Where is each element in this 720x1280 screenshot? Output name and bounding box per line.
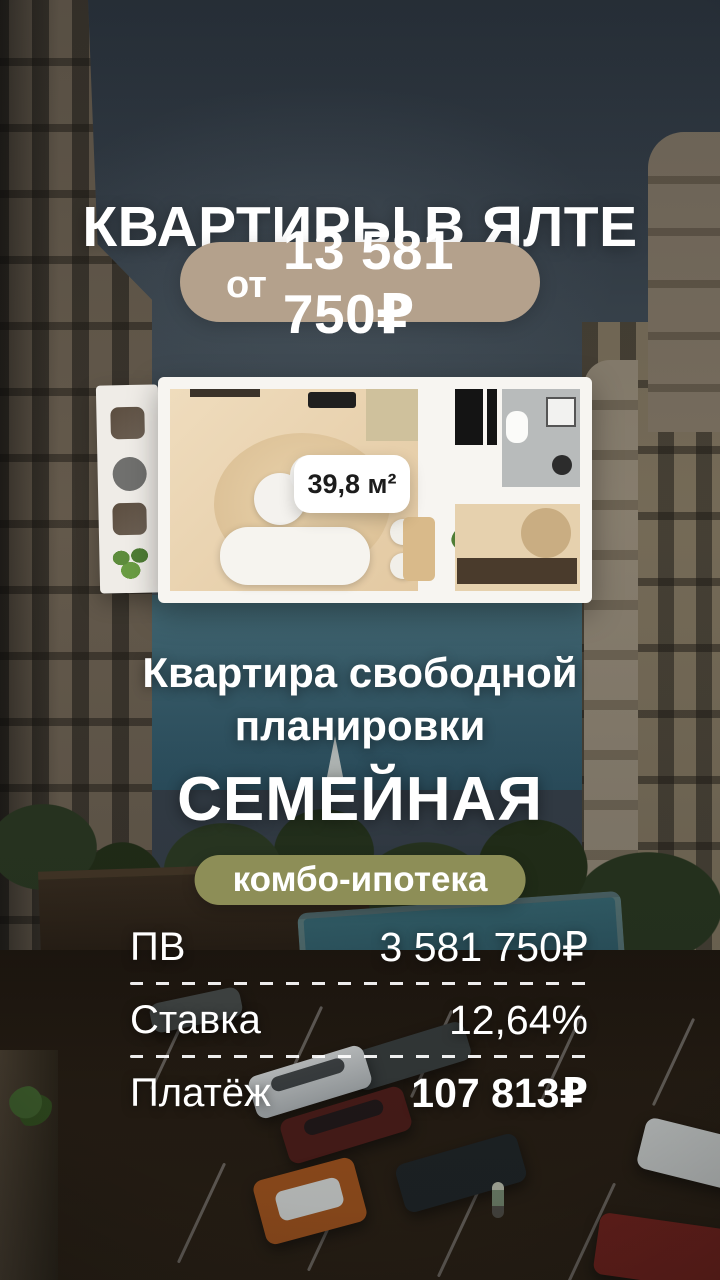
balcony-chair — [112, 503, 147, 536]
row-value: 107 813₽ — [411, 1069, 588, 1117]
balcony-plant — [107, 541, 154, 584]
building-left-base — [0, 1050, 58, 1280]
row-value: 3 581 750₽ — [380, 923, 588, 971]
dining-table — [403, 517, 435, 581]
toilet — [506, 411, 528, 443]
kitchen-cabinet — [366, 389, 418, 441]
shower-chair — [552, 455, 572, 475]
row-label: Ставка — [130, 998, 261, 1043]
row-divider — [130, 982, 588, 985]
apartment-subtitle: Квартира свободной планировки — [0, 646, 720, 753]
row-value: 12,64% — [449, 997, 588, 1044]
table-row: Ставка 12,64% — [130, 985, 588, 1055]
bedroom-chair — [521, 508, 571, 558]
row-divider — [130, 1055, 588, 1058]
mortgage-table: ПВ 3 581 750₽ Ставка 12,64% Платёж 107 8… — [130, 912, 588, 1128]
program-badge-label: комбо-ипотека — [233, 860, 488, 900]
floor-plan: 39,8 м² — [98, 377, 592, 605]
wardrobe — [455, 389, 483, 445]
sofa — [220, 527, 370, 585]
price-badge: от 13 581 750₽ — [180, 242, 540, 322]
table-row: Платёж 107 813₽ — [130, 1058, 588, 1128]
building-right-tower — [648, 132, 720, 432]
kitchen-stove — [308, 392, 356, 408]
balcony-plants — [8, 1086, 52, 1126]
table-row: ПВ 3 581 750₽ — [130, 912, 588, 982]
pedestrian — [492, 1182, 504, 1218]
program-name: СЕМЕЙНАЯ — [0, 764, 720, 835]
wardrobe — [487, 389, 497, 445]
ad-creative: КВАРТИРЫ В ЯЛТЕ от 13 581 750₽ — [0, 0, 720, 1280]
program-badge: комбо-ипотека — [195, 855, 526, 905]
row-label: ПВ — [130, 925, 185, 970]
bed — [457, 558, 577, 584]
balcony-chair — [110, 407, 145, 440]
plan-balcony — [96, 384, 162, 593]
price-badge-prefix: от — [226, 264, 267, 307]
balcony-table — [112, 457, 147, 492]
plan-bathroom — [502, 389, 580, 487]
price-badge-amount: 13 581 750₽ — [283, 218, 494, 346]
car-roof — [273, 1176, 345, 1223]
area-label: 39,8 м² — [294, 455, 410, 513]
row-label: Платёж — [130, 1071, 271, 1116]
subtitle-line2: планировки — [235, 702, 486, 749]
area-label-text: 39,8 м² — [307, 469, 396, 500]
kitchen-window — [190, 389, 260, 397]
subtitle-line1: Квартира свободной — [142, 649, 577, 696]
plan-bedroom — [455, 504, 580, 591]
washing-machine — [546, 397, 576, 427]
